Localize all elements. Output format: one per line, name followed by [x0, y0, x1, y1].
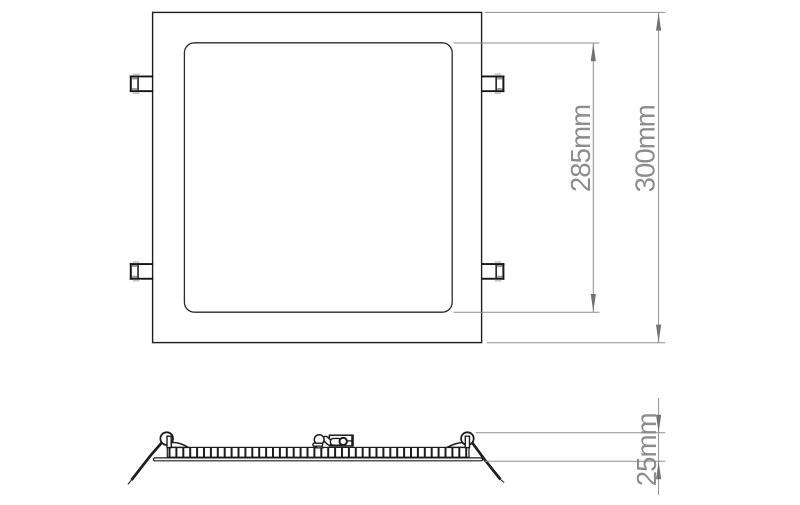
svg-text:300mm: 300mm [630, 105, 661, 192]
svg-text:285mm: 285mm [565, 105, 596, 192]
svg-text:25mm: 25mm [631, 413, 662, 486]
